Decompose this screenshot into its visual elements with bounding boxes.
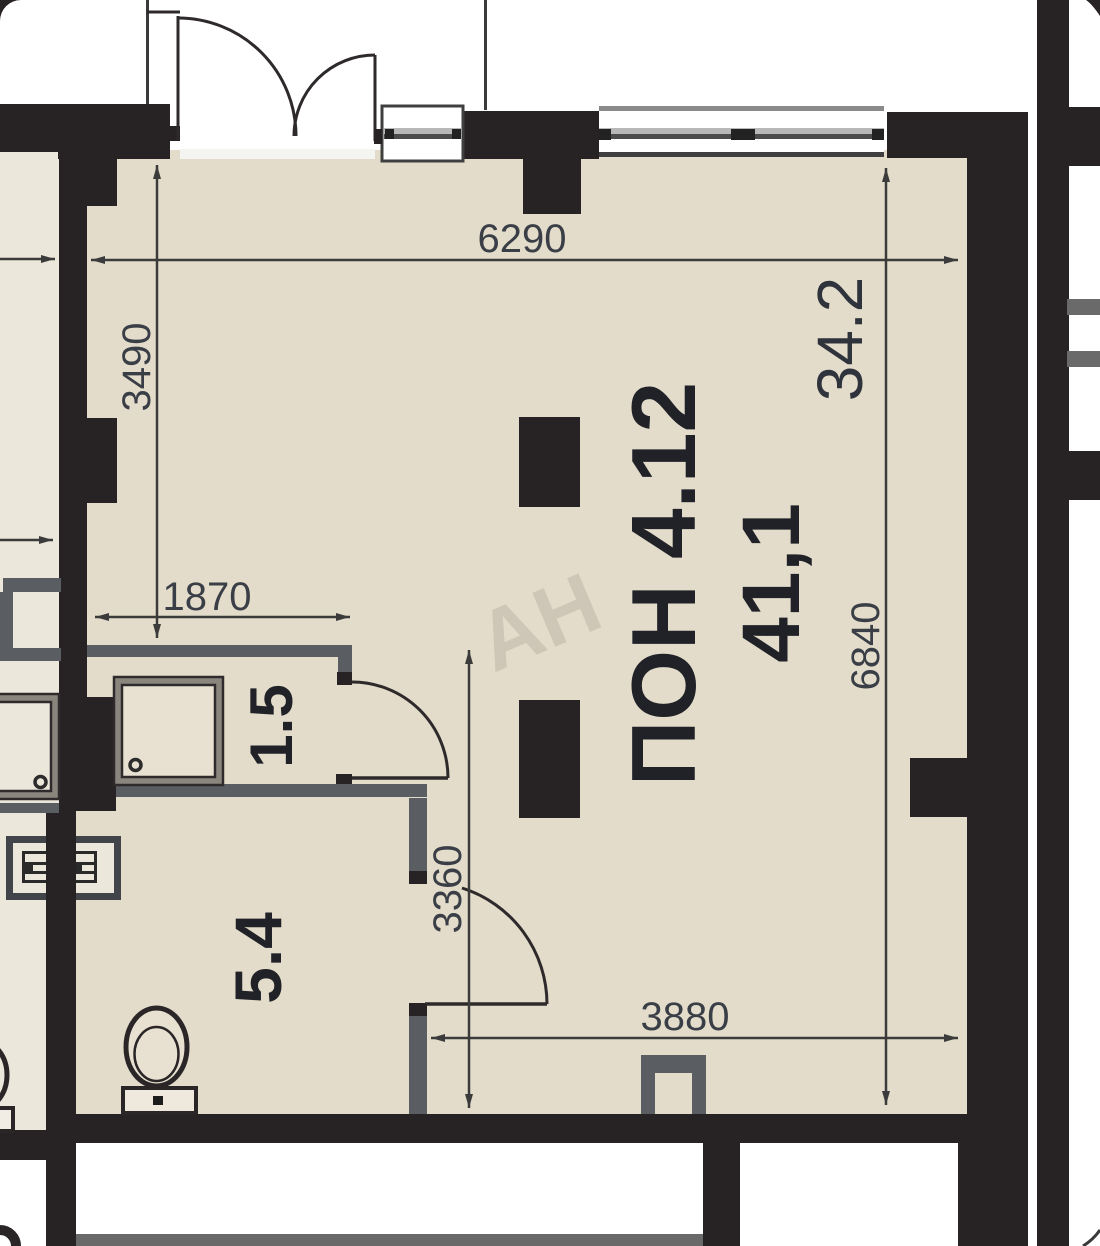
svg-text:3880: 3880 <box>641 995 730 1039</box>
svg-text:1.5: 1.5 <box>238 684 305 767</box>
svg-text:1870: 1870 <box>163 575 252 619</box>
svg-text:6290: 6290 <box>478 217 567 261</box>
svg-text:3490: 3490 <box>115 323 159 412</box>
svg-text:41,1: 41,1 <box>726 503 817 663</box>
svg-text:34.2: 34.2 <box>804 277 876 402</box>
svg-text:6840: 6840 <box>844 602 888 691</box>
svg-text:ПОН 4.12: ПОН 4.12 <box>614 382 715 786</box>
svg-text:5.4: 5.4 <box>221 912 295 1004</box>
svg-text:3360: 3360 <box>426 845 470 934</box>
